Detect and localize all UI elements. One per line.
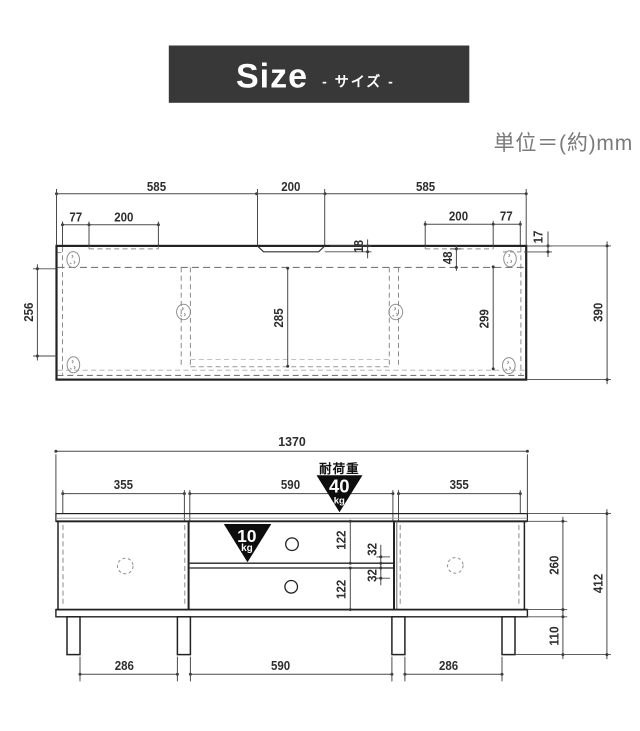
svg-text:単位＝(約)mm: 単位＝(約)mm: [494, 132, 633, 155]
svg-text:585: 585: [147, 180, 166, 194]
svg-text:590: 590: [271, 659, 290, 673]
svg-text:1370: 1370: [278, 435, 306, 449]
svg-text:77: 77: [500, 210, 513, 224]
svg-text:355: 355: [450, 478, 469, 492]
svg-text:590: 590: [281, 478, 300, 492]
svg-text:285: 285: [272, 308, 286, 327]
svg-text:110: 110: [547, 626, 561, 645]
svg-text:- サイズ -: - サイズ -: [322, 74, 395, 90]
svg-text:286: 286: [115, 659, 134, 673]
svg-text:Size: Size: [236, 58, 308, 96]
svg-text:200: 200: [281, 180, 300, 194]
svg-text:耐荷重: 耐荷重: [319, 461, 360, 476]
svg-text:200: 200: [449, 210, 468, 224]
svg-text:32: 32: [365, 569, 379, 582]
svg-text:200: 200: [114, 210, 133, 224]
svg-text:17: 17: [532, 231, 546, 244]
svg-text:32: 32: [365, 543, 379, 556]
svg-text:40: 40: [329, 476, 350, 497]
svg-text:390: 390: [592, 303, 606, 322]
svg-text:kg: kg: [241, 543, 253, 554]
svg-text:122: 122: [335, 531, 349, 550]
svg-text:260: 260: [547, 556, 561, 575]
svg-text:48: 48: [441, 251, 455, 264]
svg-text:256: 256: [22, 303, 36, 322]
svg-text:77: 77: [69, 210, 82, 224]
svg-text:122: 122: [335, 580, 349, 599]
svg-text:412: 412: [591, 574, 605, 593]
svg-text:18: 18: [352, 240, 366, 253]
svg-text:585: 585: [416, 180, 435, 194]
svg-text:355: 355: [114, 478, 133, 492]
svg-text:286: 286: [439, 659, 458, 673]
svg-text:299: 299: [478, 309, 492, 328]
svg-text:kg: kg: [334, 496, 345, 507]
